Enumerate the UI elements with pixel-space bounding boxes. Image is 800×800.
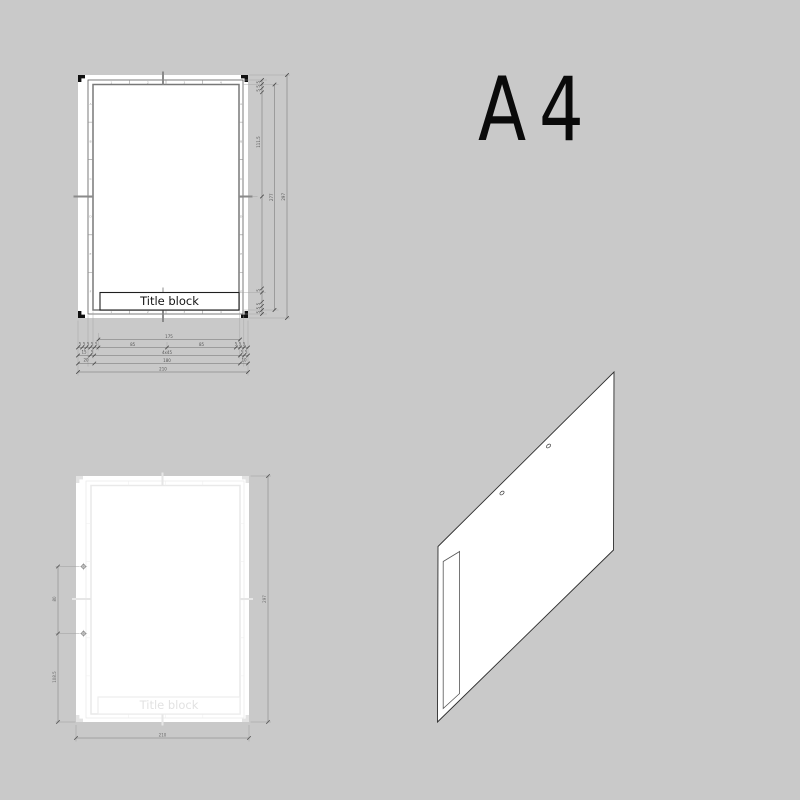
grid-col-label: 4: [220, 310, 222, 314]
grid-row-label: C: [89, 177, 91, 181]
grid-row-label: E: [90, 252, 92, 256]
grid-col-label: 3: [183, 310, 185, 314]
dim-label: 5: [91, 350, 94, 355]
dim-label: 15: [81, 350, 87, 355]
dim-label: 5: [256, 310, 261, 313]
format-heading: A4: [478, 58, 597, 161]
dim-label: 111.5: [256, 136, 261, 148]
grid-row-label: F: [240, 290, 242, 294]
grid-col-label: 4: [220, 80, 222, 84]
dim-label: 175: [165, 334, 173, 339]
grid-row-label: C: [240, 177, 242, 181]
dim-label: 4x45: [162, 350, 172, 355]
drawing-canvas: 1 2 3 4 1 2 3 4 A B C D E F A B C D E F …: [0, 0, 800, 800]
dim-label: 5: [83, 342, 86, 347]
dim-label: 5: [245, 350, 248, 355]
format-label: A4: [478, 58, 597, 161]
dim-label: 85: [130, 342, 136, 347]
grid-row-label: B: [89, 139, 91, 143]
grid-col-label: 2: [147, 80, 149, 84]
dim-label: 10: [241, 358, 247, 363]
dim-label: 5: [243, 342, 246, 347]
dim-label: 5: [256, 302, 261, 305]
dim-label: 108.5: [52, 671, 57, 683]
grid-col-label: 1: [110, 310, 112, 314]
grid-col-label: 1: [110, 80, 112, 84]
dim-label: 5: [87, 342, 90, 347]
dim-label: 297: [262, 595, 267, 603]
sheet-face: [76, 476, 249, 722]
title-block-label: Title block: [139, 294, 199, 308]
front-view: 1 2 3 4 1 2 3 4 A B C D E F A B C D E F …: [74, 72, 291, 376]
sheet-face: [78, 75, 248, 318]
dim-label: 20: [83, 358, 89, 363]
title-block-label: Title block: [139, 698, 199, 712]
dim-label: 5: [256, 89, 261, 92]
dim-label: 297: [281, 193, 286, 201]
grid-col-label: 2: [147, 310, 149, 314]
iso-view: [438, 372, 615, 722]
dim-label: 5: [256, 306, 261, 309]
dim-label: 5: [91, 342, 94, 347]
dim-label: 5: [241, 350, 244, 355]
dim-label: 5: [256, 80, 261, 83]
dim-label: 277: [269, 193, 274, 201]
dim-label: 85: [199, 342, 205, 347]
iso-sheet-face: [438, 372, 615, 722]
dim-label: 5: [95, 342, 98, 347]
grid-col-label: 3: [183, 80, 185, 84]
dim-label: 5: [256, 85, 261, 88]
grid-row-label: B: [240, 139, 242, 143]
dim-label: 80: [52, 596, 57, 602]
dim-label: 210: [159, 366, 167, 371]
dim-label: 5: [235, 342, 238, 347]
dim-label: 5: [256, 289, 261, 292]
grid-row-label: F: [90, 290, 92, 294]
ghost-view: Title block 80 108.5 297 210: [52, 473, 271, 742]
dim-label: 5: [79, 342, 82, 347]
dim-label: 210: [159, 732, 167, 737]
dim-label: 180: [163, 358, 171, 363]
grid-row-label: E: [240, 252, 242, 256]
